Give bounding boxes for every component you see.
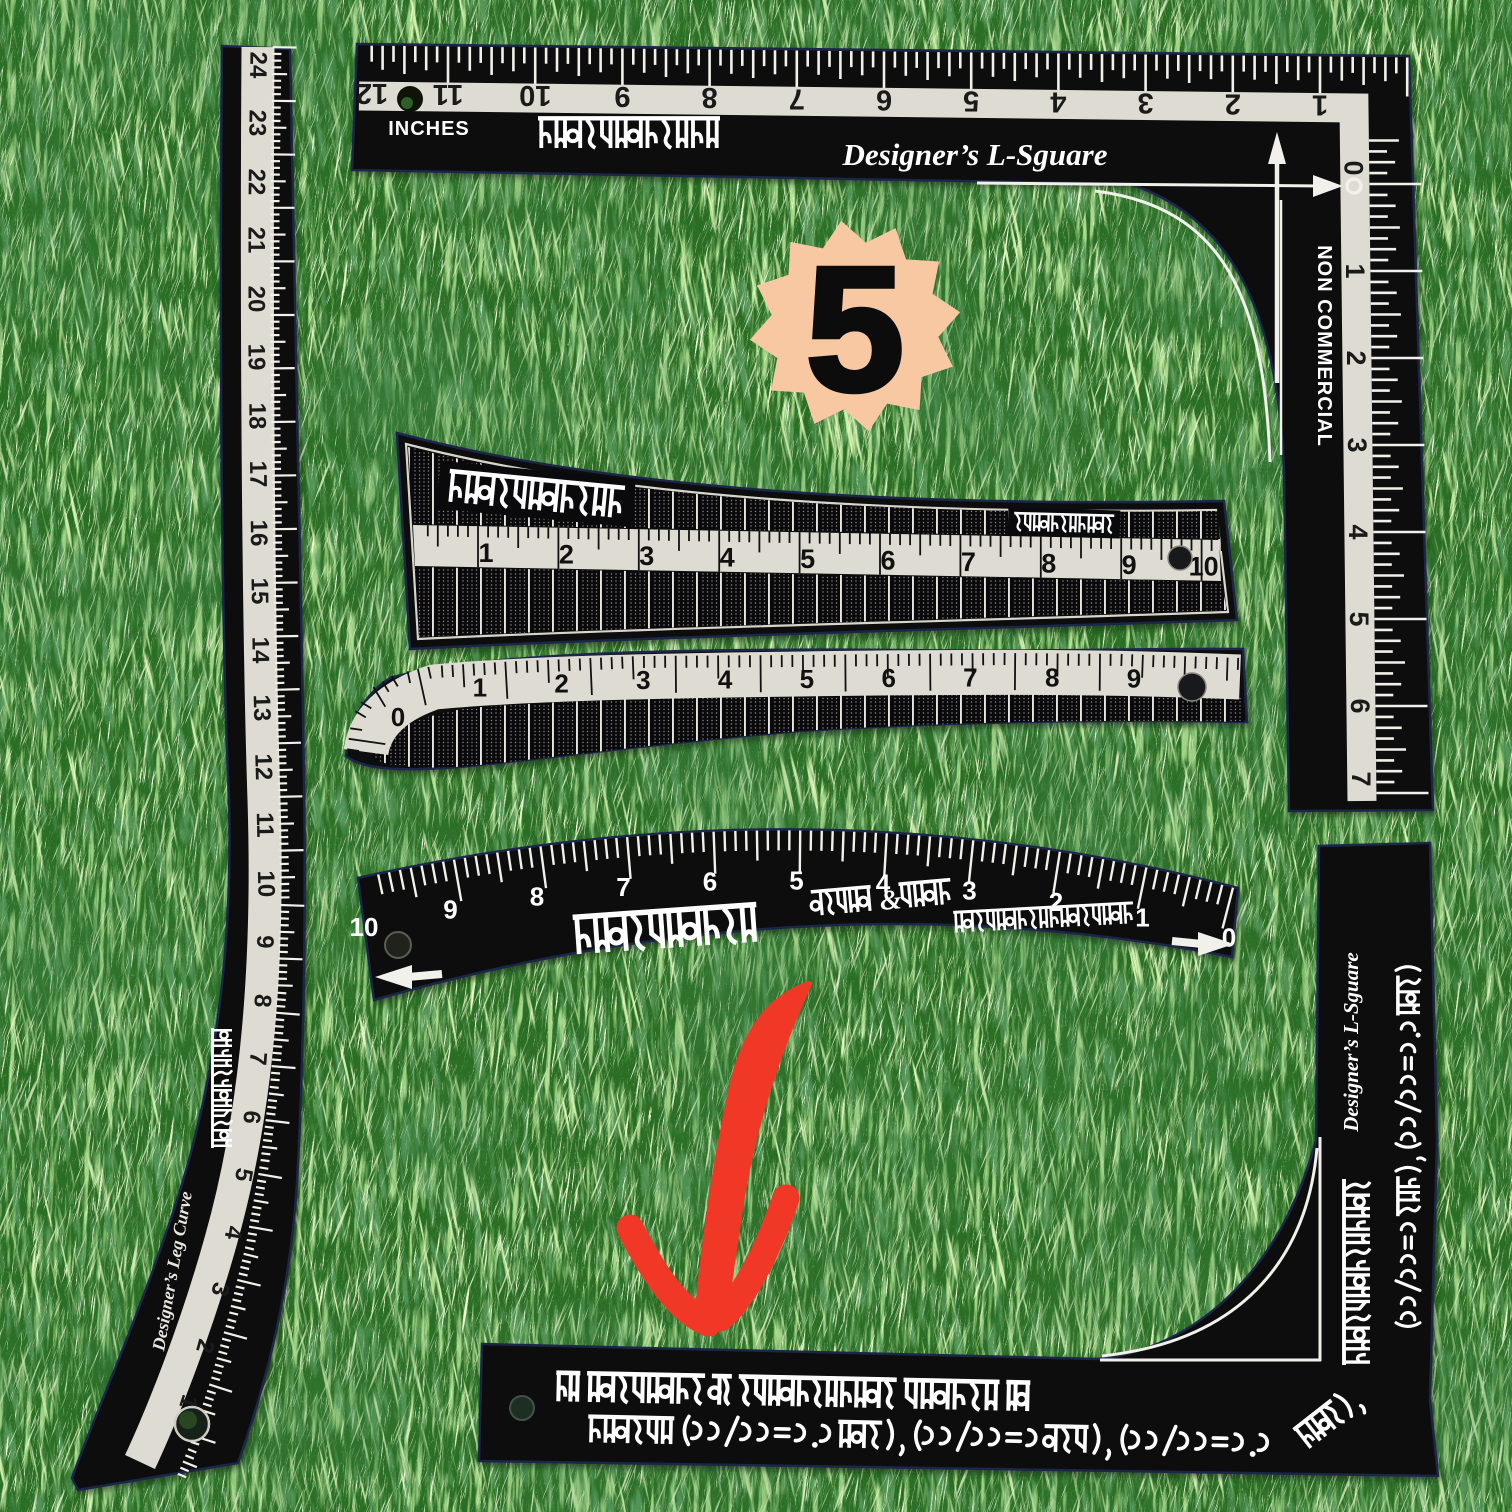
svg-text:8: 8 <box>530 881 544 911</box>
svg-text:6: 6 <box>881 663 895 693</box>
svg-text:2: 2 <box>554 668 568 698</box>
svg-text:4: 4 <box>1343 524 1373 539</box>
svg-text:&: & <box>879 884 904 917</box>
svg-text:11: 11 <box>433 78 464 110</box>
svg-text:5: 5 <box>800 544 815 574</box>
svg-text:0: 0 <box>1222 923 1236 953</box>
svg-text:7: 7 <box>961 547 976 577</box>
svg-text:16: 16 <box>245 519 272 546</box>
svg-text:1: 1 <box>478 538 493 568</box>
svg-text:9: 9 <box>251 935 278 949</box>
svg-text:7: 7 <box>1346 771 1376 786</box>
svg-text:14: 14 <box>246 636 273 664</box>
svg-text:8: 8 <box>1045 662 1059 692</box>
svg-text:12: 12 <box>356 77 388 109</box>
svg-text:9: 9 <box>1127 664 1141 694</box>
svg-text:10: 10 <box>252 870 280 897</box>
svg-text:7: 7 <box>789 82 805 114</box>
svg-text:13: 13 <box>248 694 276 721</box>
svg-text:22: 22 <box>243 168 270 195</box>
svg-text:21: 21 <box>243 227 270 254</box>
svg-text:5: 5 <box>789 866 803 896</box>
svg-text:6: 6 <box>703 867 717 897</box>
svg-text:8: 8 <box>702 81 718 113</box>
svg-text:4: 4 <box>718 665 733 695</box>
svg-text:1: 1 <box>1135 903 1149 933</box>
svg-text:10: 10 <box>350 912 379 942</box>
svg-text:5: 5 <box>806 230 904 428</box>
svg-text:7: 7 <box>616 872 630 902</box>
svg-text:1: 1 <box>1340 263 1370 278</box>
svg-text:12: 12 <box>249 753 277 780</box>
svg-text:23: 23 <box>243 109 270 136</box>
svg-text:9: 9 <box>614 80 630 112</box>
svg-text:18: 18 <box>243 402 270 429</box>
svg-text:4: 4 <box>1050 85 1066 117</box>
svg-text:8: 8 <box>248 993 276 1008</box>
svg-text:7: 7 <box>963 662 977 692</box>
svg-text:11: 11 <box>251 812 279 838</box>
svg-text:5: 5 <box>963 84 979 116</box>
svg-text:5: 5 <box>800 664 814 694</box>
svg-text:1: 1 <box>1312 89 1328 121</box>
svg-text:7: 7 <box>244 1051 272 1066</box>
svg-text:Designer’s L-Sguare: Designer’s L-Sguare <box>842 137 1108 172</box>
svg-text:9: 9 <box>1122 550 1137 580</box>
svg-text:3: 3 <box>962 876 976 906</box>
svg-text:1: 1 <box>473 672 487 702</box>
svg-text:6: 6 <box>1345 698 1375 713</box>
svg-text:20: 20 <box>243 286 270 313</box>
svg-text:24: 24 <box>244 51 271 79</box>
svg-text:3: 3 <box>1342 437 1372 452</box>
svg-text:6: 6 <box>880 546 895 576</box>
svg-text:3: 3 <box>636 665 650 695</box>
svg-text:19: 19 <box>242 343 269 370</box>
svg-text:4: 4 <box>720 543 735 573</box>
svg-text:9: 9 <box>443 895 457 925</box>
svg-text:10: 10 <box>519 79 551 111</box>
svg-text:3: 3 <box>1138 87 1154 119</box>
svg-text:NON COMMERCIAL: NON COMMERCIAL <box>1313 245 1335 447</box>
svg-text:0: 0 <box>391 702 405 732</box>
svg-text:3: 3 <box>639 541 654 571</box>
svg-text:5: 5 <box>1344 611 1374 626</box>
svg-text:Designer’s L-Sguare: Designer’s L-Sguare <box>1339 952 1363 1132</box>
svg-text:2: 2 <box>559 540 574 570</box>
svg-text:2: 2 <box>1341 350 1371 365</box>
svg-text:INCHES: INCHES <box>388 118 470 140</box>
svg-text:0: 0 <box>1339 160 1369 175</box>
svg-text:15: 15 <box>246 577 273 604</box>
svg-text:17: 17 <box>244 460 271 487</box>
svg-text:8: 8 <box>1041 549 1056 579</box>
svg-text:10: 10 <box>1189 552 1219 582</box>
svg-text:6: 6 <box>876 83 892 115</box>
svg-text:2: 2 <box>1225 88 1241 120</box>
